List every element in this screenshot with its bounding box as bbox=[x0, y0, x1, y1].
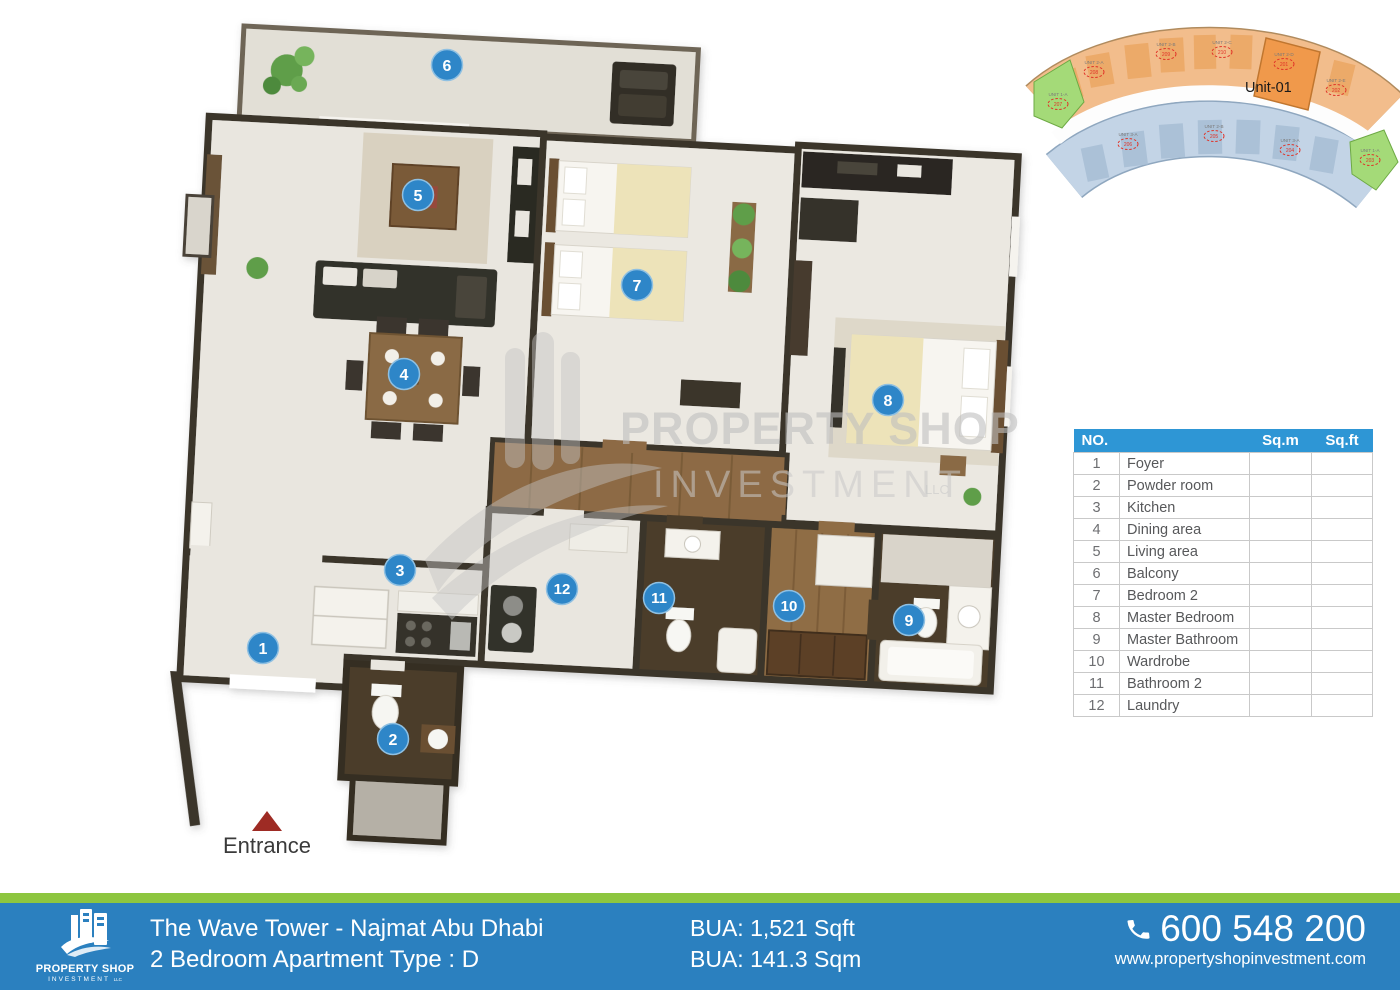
phone-number[interactable]: 600 548 200 bbox=[1160, 909, 1366, 949]
marker-foyer: 1 bbox=[248, 633, 279, 664]
watermark-line2: INVESTMENT bbox=[653, 464, 968, 506]
table-row: 4Dining area bbox=[1074, 519, 1373, 541]
svg-text:210: 210 bbox=[1218, 50, 1227, 56]
table-row: 7Bedroom 2 bbox=[1074, 585, 1373, 607]
svg-text:UNIT 2-A: UNIT 2-A bbox=[1084, 60, 1104, 65]
marker-dining-area: 4 bbox=[389, 359, 420, 390]
wall-ledge bbox=[184, 195, 213, 256]
marker-bedroom2: 7 bbox=[622, 270, 653, 301]
project-title-line1: The Wave Tower - Najmat Abu Dhabi bbox=[150, 913, 544, 944]
entrance-arrow-icon bbox=[252, 811, 282, 831]
project-title-line2: 2 Bedroom Apartment Type : D bbox=[150, 944, 544, 975]
bua-sqft: BUA: 1,521 Sqft bbox=[690, 913, 861, 944]
cabinet bbox=[816, 535, 875, 588]
door-gap bbox=[867, 599, 881, 640]
project-title: The Wave Tower - Najmat Abu Dhabi 2 Bedr… bbox=[150, 913, 544, 975]
table-row: 9Master Bathroom bbox=[1074, 629, 1373, 651]
phone-icon bbox=[1124, 914, 1154, 944]
property-shop-logo-icon bbox=[53, 907, 117, 957]
area-table: NO. Sq.m Sq.ft 1Foyer2Powder room3Kitche… bbox=[1073, 429, 1364, 717]
entrance-label: Entrance bbox=[223, 833, 311, 858]
svg-text:4: 4 bbox=[400, 367, 409, 384]
svg-text:206: 206 bbox=[1124, 142, 1133, 148]
brand-logo: PROPERTY SHOP INVESTMENT LLC bbox=[10, 907, 160, 983]
svg-text:204: 204 bbox=[1286, 148, 1295, 154]
svg-text:UNIT 2-B: UNIT 2-B bbox=[1156, 42, 1175, 47]
unit-location-map: UNIT 2-A UNIT 2-B UNIT 2-C UNIT 2-D UNIT… bbox=[1034, 35, 1398, 190]
door-gap bbox=[666, 515, 702, 527]
watermark-line1: PROPERTY SHOP bbox=[620, 403, 1020, 454]
shower bbox=[717, 628, 757, 674]
svg-text:9: 9 bbox=[905, 613, 914, 630]
svg-text:UNIT 3-A: UNIT 3-A bbox=[1118, 132, 1138, 137]
closet bbox=[767, 630, 867, 679]
bed-single-2 bbox=[541, 242, 687, 323]
balcony-lounger bbox=[609, 61, 676, 126]
entrance-indicator: Entrance bbox=[223, 811, 311, 858]
table-row: 8Master Bedroom bbox=[1074, 607, 1373, 629]
svg-text:8: 8 bbox=[884, 393, 893, 410]
room-master-bathroom bbox=[864, 530, 998, 691]
footer-green-strip bbox=[0, 893, 1400, 903]
col-header-sqft: Sq.ft bbox=[1312, 429, 1373, 453]
svg-text:UNIT 1-A: UNIT 1-A bbox=[1048, 92, 1068, 97]
marker-balcony: 6 bbox=[432, 50, 463, 81]
marker-kitchen: 3 bbox=[385, 555, 416, 586]
svg-text:7: 7 bbox=[633, 278, 642, 295]
table-row: 6Balcony bbox=[1074, 563, 1373, 585]
website-link[interactable]: www.propertyshopinvestment.com bbox=[1115, 950, 1366, 969]
contact-block: 600 548 200 www.propertyshopinvestment.c… bbox=[1115, 909, 1366, 969]
flyer-page: PROPERTY SHOP INVESTMENT LLC bbox=[0, 0, 1400, 990]
sink bbox=[684, 536, 701, 553]
door-gap bbox=[818, 521, 855, 535]
table-row: 5Living area bbox=[1074, 541, 1373, 563]
bathtub-inner bbox=[887, 647, 974, 679]
svg-text:UNIT 2-E: UNIT 2-E bbox=[1326, 78, 1345, 83]
sink bbox=[958, 605, 981, 628]
brand-subtitle: INVESTMENT LLC bbox=[10, 976, 160, 983]
table-row: 10Wardrobe bbox=[1074, 651, 1373, 673]
brand-name: PROPERTY SHOP bbox=[10, 963, 160, 975]
svg-text:207: 207 bbox=[1054, 102, 1063, 108]
footer-blue-bar: PROPERTY SHOP INVESTMENT LLC The Wave To… bbox=[0, 903, 1400, 990]
table-row: 2Powder room bbox=[1074, 475, 1373, 497]
svg-text:11: 11 bbox=[651, 590, 667, 607]
svg-text:10: 10 bbox=[781, 598, 798, 615]
mbath-counter-zone bbox=[881, 534, 993, 588]
marker-powder-room: 2 bbox=[378, 724, 409, 755]
map-highlight-label: Unit-01 bbox=[1245, 80, 1292, 96]
svg-text:3: 3 bbox=[396, 563, 405, 580]
bua-info: BUA: 1,521 Sqft BUA: 141.3 Sqm bbox=[690, 913, 861, 975]
svg-text:2: 2 bbox=[389, 732, 398, 749]
col-header-sqm: Sq.m bbox=[1250, 429, 1312, 453]
marker-living-area: 5 bbox=[403, 180, 434, 211]
svg-text:UNIT 1-A: UNIT 1-A bbox=[1360, 148, 1380, 153]
svg-text:UNIT 3-A: UNIT 3-A bbox=[1280, 138, 1300, 143]
svg-text:203: 203 bbox=[1366, 158, 1375, 164]
table-body: 1Foyer2Powder room3Kitchen4Dining area5L… bbox=[1074, 453, 1373, 717]
door-gap bbox=[370, 660, 404, 672]
footer-bar: PROPERTY SHOP INVESTMENT LLC The Wave To… bbox=[0, 893, 1400, 990]
table-row: 12Laundry bbox=[1074, 695, 1373, 717]
svg-text:UNIT 2-D: UNIT 2-D bbox=[1274, 52, 1294, 57]
col-header-no: NO. bbox=[1074, 429, 1120, 453]
col-header-name bbox=[1120, 429, 1250, 453]
svg-text:208: 208 bbox=[1090, 70, 1099, 76]
svg-text:1: 1 bbox=[259, 641, 268, 658]
table-row: 1Foyer bbox=[1074, 453, 1373, 475]
table-header-row: NO. Sq.m Sq.ft bbox=[1074, 429, 1373, 453]
washer-dryer bbox=[488, 585, 537, 653]
marker-wardrobe: 10 bbox=[774, 591, 805, 622]
bed-single-1 bbox=[546, 158, 692, 239]
cooktop bbox=[395, 613, 477, 657]
porch-wall bbox=[162, 671, 208, 827]
svg-text:6: 6 bbox=[443, 58, 452, 75]
bedroom2-plants-icon bbox=[728, 202, 757, 293]
svg-text:12: 12 bbox=[554, 581, 571, 598]
marker-master-bedroom: 8 bbox=[873, 385, 904, 416]
marker-bathroom2: 11 bbox=[644, 583, 675, 614]
table-row: 3Kitchen bbox=[1074, 497, 1373, 519]
svg-text:UNIT 2-B: UNIT 2-B bbox=[1204, 124, 1223, 129]
svg-text:UNIT 2-C: UNIT 2-C bbox=[1212, 40, 1232, 45]
map-highlight-unit bbox=[1254, 38, 1320, 110]
svg-text:205: 205 bbox=[1210, 134, 1219, 140]
table-row: 11Bathroom 2 bbox=[1074, 673, 1373, 695]
bua-sqm: BUA: 141.3 Sqm bbox=[690, 944, 861, 975]
watermark-suffix: LLC bbox=[925, 482, 949, 497]
svg-text:209: 209 bbox=[1162, 52, 1171, 58]
marker-master-bathroom: 9 bbox=[894, 605, 925, 636]
vestibule bbox=[350, 778, 447, 843]
marker-laundry: 12 bbox=[547, 574, 578, 605]
svg-text:201: 201 bbox=[1280, 62, 1289, 68]
svg-text:5: 5 bbox=[414, 188, 423, 205]
svg-text:202: 202 bbox=[1332, 88, 1341, 94]
sofa bbox=[313, 260, 498, 327]
